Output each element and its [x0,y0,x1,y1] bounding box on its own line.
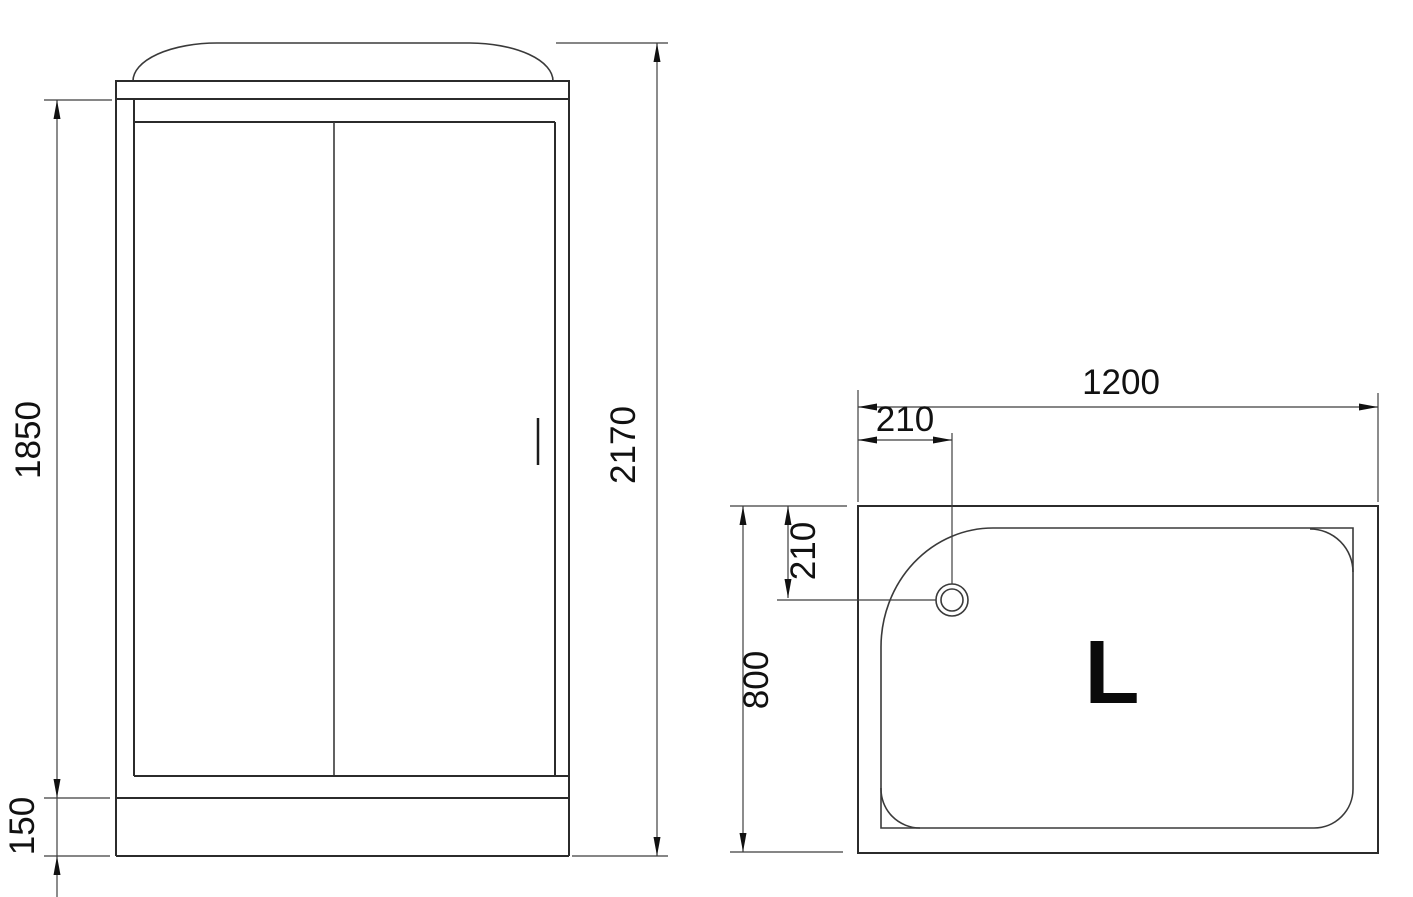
arrow-210h-right [933,437,952,444]
arrow-1850-top [54,100,61,119]
drawing-canvas: 1850 150 2170 L [0,0,1413,897]
tray-corner-arc-bottom-left [881,788,920,828]
arrow-2170-top [654,43,661,62]
arrow-1850-bottom [54,779,61,798]
dim-150-label: 150 [3,797,42,855]
tray-orientation-label: L [1085,623,1140,723]
top-view-dimensions: 1200 210 210 800 [730,363,1378,852]
front-top-frame-band [116,81,569,99]
dim-1200-label: 1200 [1082,363,1160,402]
front-roof-dome [133,43,553,81]
arrow-1200-left [858,404,877,411]
arrow-210h-left [858,437,877,444]
drain-inner-circle [941,589,963,611]
technical-drawing: 1850 150 2170 L [0,0,1413,897]
dim-2170-label: 2170 [604,406,643,484]
dim-1850-label: 1850 [9,401,48,479]
tray-corner-arc-top-right [1310,529,1353,572]
dim-210h-label: 210 [876,400,934,439]
arrow-800-top [740,506,747,525]
arrow-800-bottom [740,833,747,852]
arrow-210v-bottom [785,579,792,598]
dim-210v-label: 210 [784,522,823,580]
front-view [116,43,569,856]
arrow-1200-right [1359,404,1378,411]
arrow-150-bottom [54,856,61,875]
arrow-2170-bottom [654,837,661,856]
dim-800-label: 800 [737,651,776,709]
top-view: L [858,506,1378,853]
